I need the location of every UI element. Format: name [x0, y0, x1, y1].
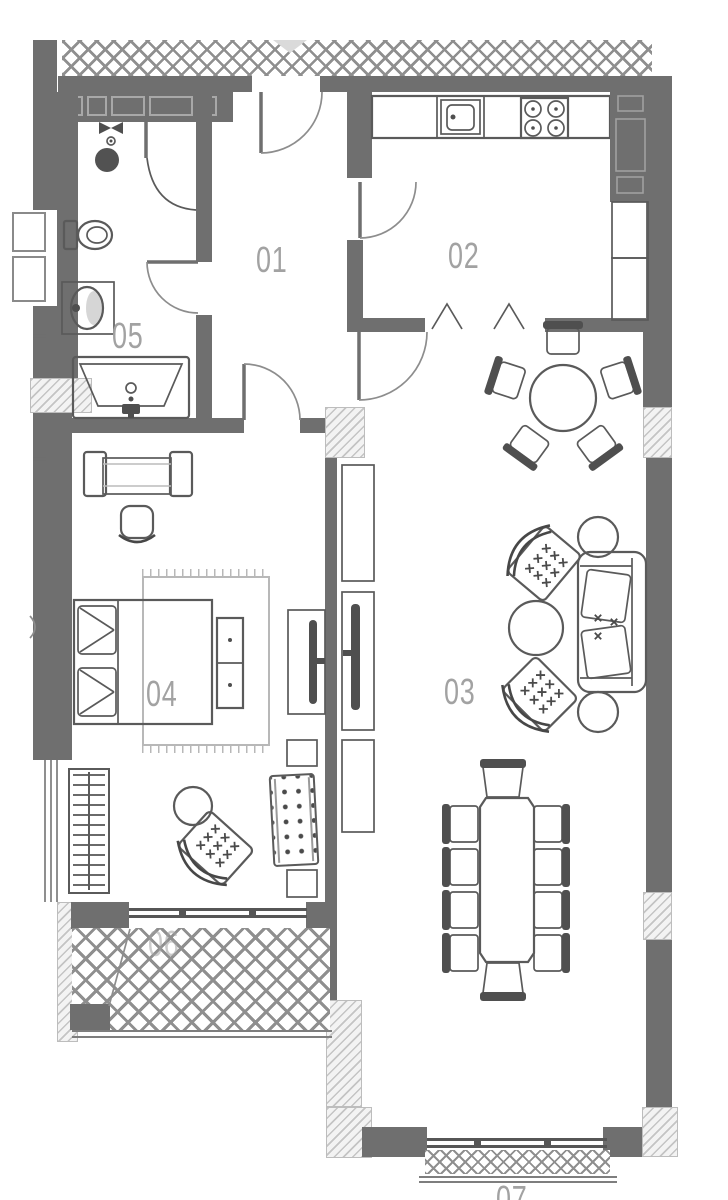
fridge-tall-unit — [610, 90, 650, 202]
wall-right-3 — [646, 458, 672, 892]
dining-chair — [599, 355, 643, 403]
meter-box — [149, 96, 193, 116]
meter-box — [111, 96, 145, 116]
wall-bedroom-top-left — [72, 418, 244, 433]
bedroom-tv — [288, 610, 325, 714]
wall-left-upper — [57, 92, 78, 378]
window-left — [44, 760, 58, 902]
floor-drain — [95, 148, 119, 172]
armchair — [498, 517, 584, 604]
dining-chair — [502, 422, 554, 472]
hatch-notch — [273, 40, 307, 53]
neighbour-fixture — [12, 256, 46, 302]
side-chair — [534, 804, 570, 844]
room-label-03: 03 — [444, 674, 476, 710]
side-chair — [442, 933, 478, 973]
small-chair — [119, 506, 155, 542]
end-chair — [480, 963, 526, 1001]
bedroom-armchair — [169, 808, 256, 895]
column-hatch-right-corner — [642, 1107, 678, 1157]
column-hatch-right-2 — [643, 892, 672, 940]
side-table — [578, 692, 618, 732]
living-wall-units — [342, 465, 374, 832]
room-label-06: 06 — [148, 926, 180, 962]
room-label-01: 01 — [256, 242, 288, 278]
room-label-05: 05 — [112, 318, 144, 354]
neighbour-wall-strip — [33, 40, 57, 210]
lounge-group — [493, 517, 646, 741]
tv-living — [351, 604, 360, 710]
side-table — [578, 517, 618, 557]
wall-kitchen-living-left — [347, 318, 425, 332]
living-room-door — [359, 332, 427, 400]
stove — [521, 98, 568, 138]
sofa — [578, 552, 646, 692]
wall-bath-hall-upper — [196, 92, 212, 262]
coffee-table — [509, 601, 563, 655]
side-chair — [534, 847, 570, 887]
wall-top-left — [58, 76, 252, 92]
armchair — [493, 654, 580, 741]
neighbour-wall-strip — [33, 306, 57, 378]
room-label-04: 04 — [146, 676, 178, 712]
wall-bath-hall-lower — [196, 315, 212, 420]
balcony-06-edge — [72, 1030, 332, 1038]
bedroom-bench — [269, 773, 320, 867]
rug-fringe-top — [142, 569, 270, 576]
window-post — [179, 911, 186, 915]
side-square-table — [287, 740, 317, 766]
entrance-door — [261, 92, 322, 153]
kitchen-base-cabinets — [612, 202, 648, 320]
wall-stub-balcony-left — [71, 902, 129, 929]
wardrobe — [68, 768, 110, 894]
wall-right-4 — [646, 940, 672, 1107]
side-chair — [442, 890, 478, 930]
wall-stub-balcony-right — [306, 902, 330, 928]
shower — [146, 122, 196, 210]
neighbour-fixture — [12, 212, 46, 252]
side-chair — [534, 890, 570, 930]
side-square-table — [287, 870, 317, 897]
round-dining-table — [484, 321, 643, 472]
top-crosshatch-zone — [62, 40, 652, 76]
water-valve-icon — [99, 122, 123, 145]
wall-top-right — [320, 76, 652, 92]
railing-post — [474, 1141, 481, 1145]
balcony-06-floor — [72, 928, 330, 1032]
kitchen-sink — [441, 100, 480, 134]
side-chair — [442, 847, 478, 887]
kitchen-door — [360, 182, 416, 238]
wall-left-mid — [33, 413, 72, 760]
wall-right-1 — [646, 76, 672, 330]
balcony-07-railing — [427, 1138, 607, 1148]
window-post — [249, 911, 256, 915]
column-hatch-right-1 — [643, 407, 672, 458]
side-chair — [534, 933, 570, 973]
desk-with-chairs — [84, 452, 192, 496]
pillow — [78, 668, 116, 716]
column-hatch-central — [325, 407, 365, 458]
room-label-07: 07 — [496, 1181, 528, 1200]
railing-post — [544, 1141, 551, 1145]
column-hatch-central-lower — [326, 1000, 362, 1107]
column-hatch-left — [30, 378, 92, 413]
wall-kitchen-living-right — [545, 318, 652, 332]
wall-right-2 — [643, 330, 672, 407]
floor-plan: 01 02 03 04 05 06 07 — [0, 0, 728, 1200]
wardrobe-rail — [88, 772, 90, 890]
balcony-06-window — [129, 908, 307, 918]
bedroom-door — [244, 364, 300, 420]
round-side-table — [174, 787, 212, 825]
rug-fringe-bottom — [142, 746, 270, 753]
side-chair — [442, 804, 478, 844]
pillow — [78, 606, 116, 654]
bedroom-rug — [142, 576, 270, 746]
kitchen-counter — [372, 96, 610, 138]
passage-chevrons — [432, 304, 524, 329]
meter-box — [87, 96, 107, 116]
dining-chair — [484, 355, 528, 403]
wall-bottom-stub-left — [362, 1127, 427, 1157]
dining-chair — [573, 422, 625, 472]
end-chair — [480, 759, 526, 797]
room-label-02: 02 — [448, 238, 480, 274]
wall-hall-kitchen-upper — [347, 92, 372, 178]
balcony-07-floor — [425, 1150, 610, 1174]
long-dining-table — [442, 759, 570, 1001]
bathroom-door — [147, 262, 198, 313]
balcony-06-block — [70, 1004, 110, 1030]
